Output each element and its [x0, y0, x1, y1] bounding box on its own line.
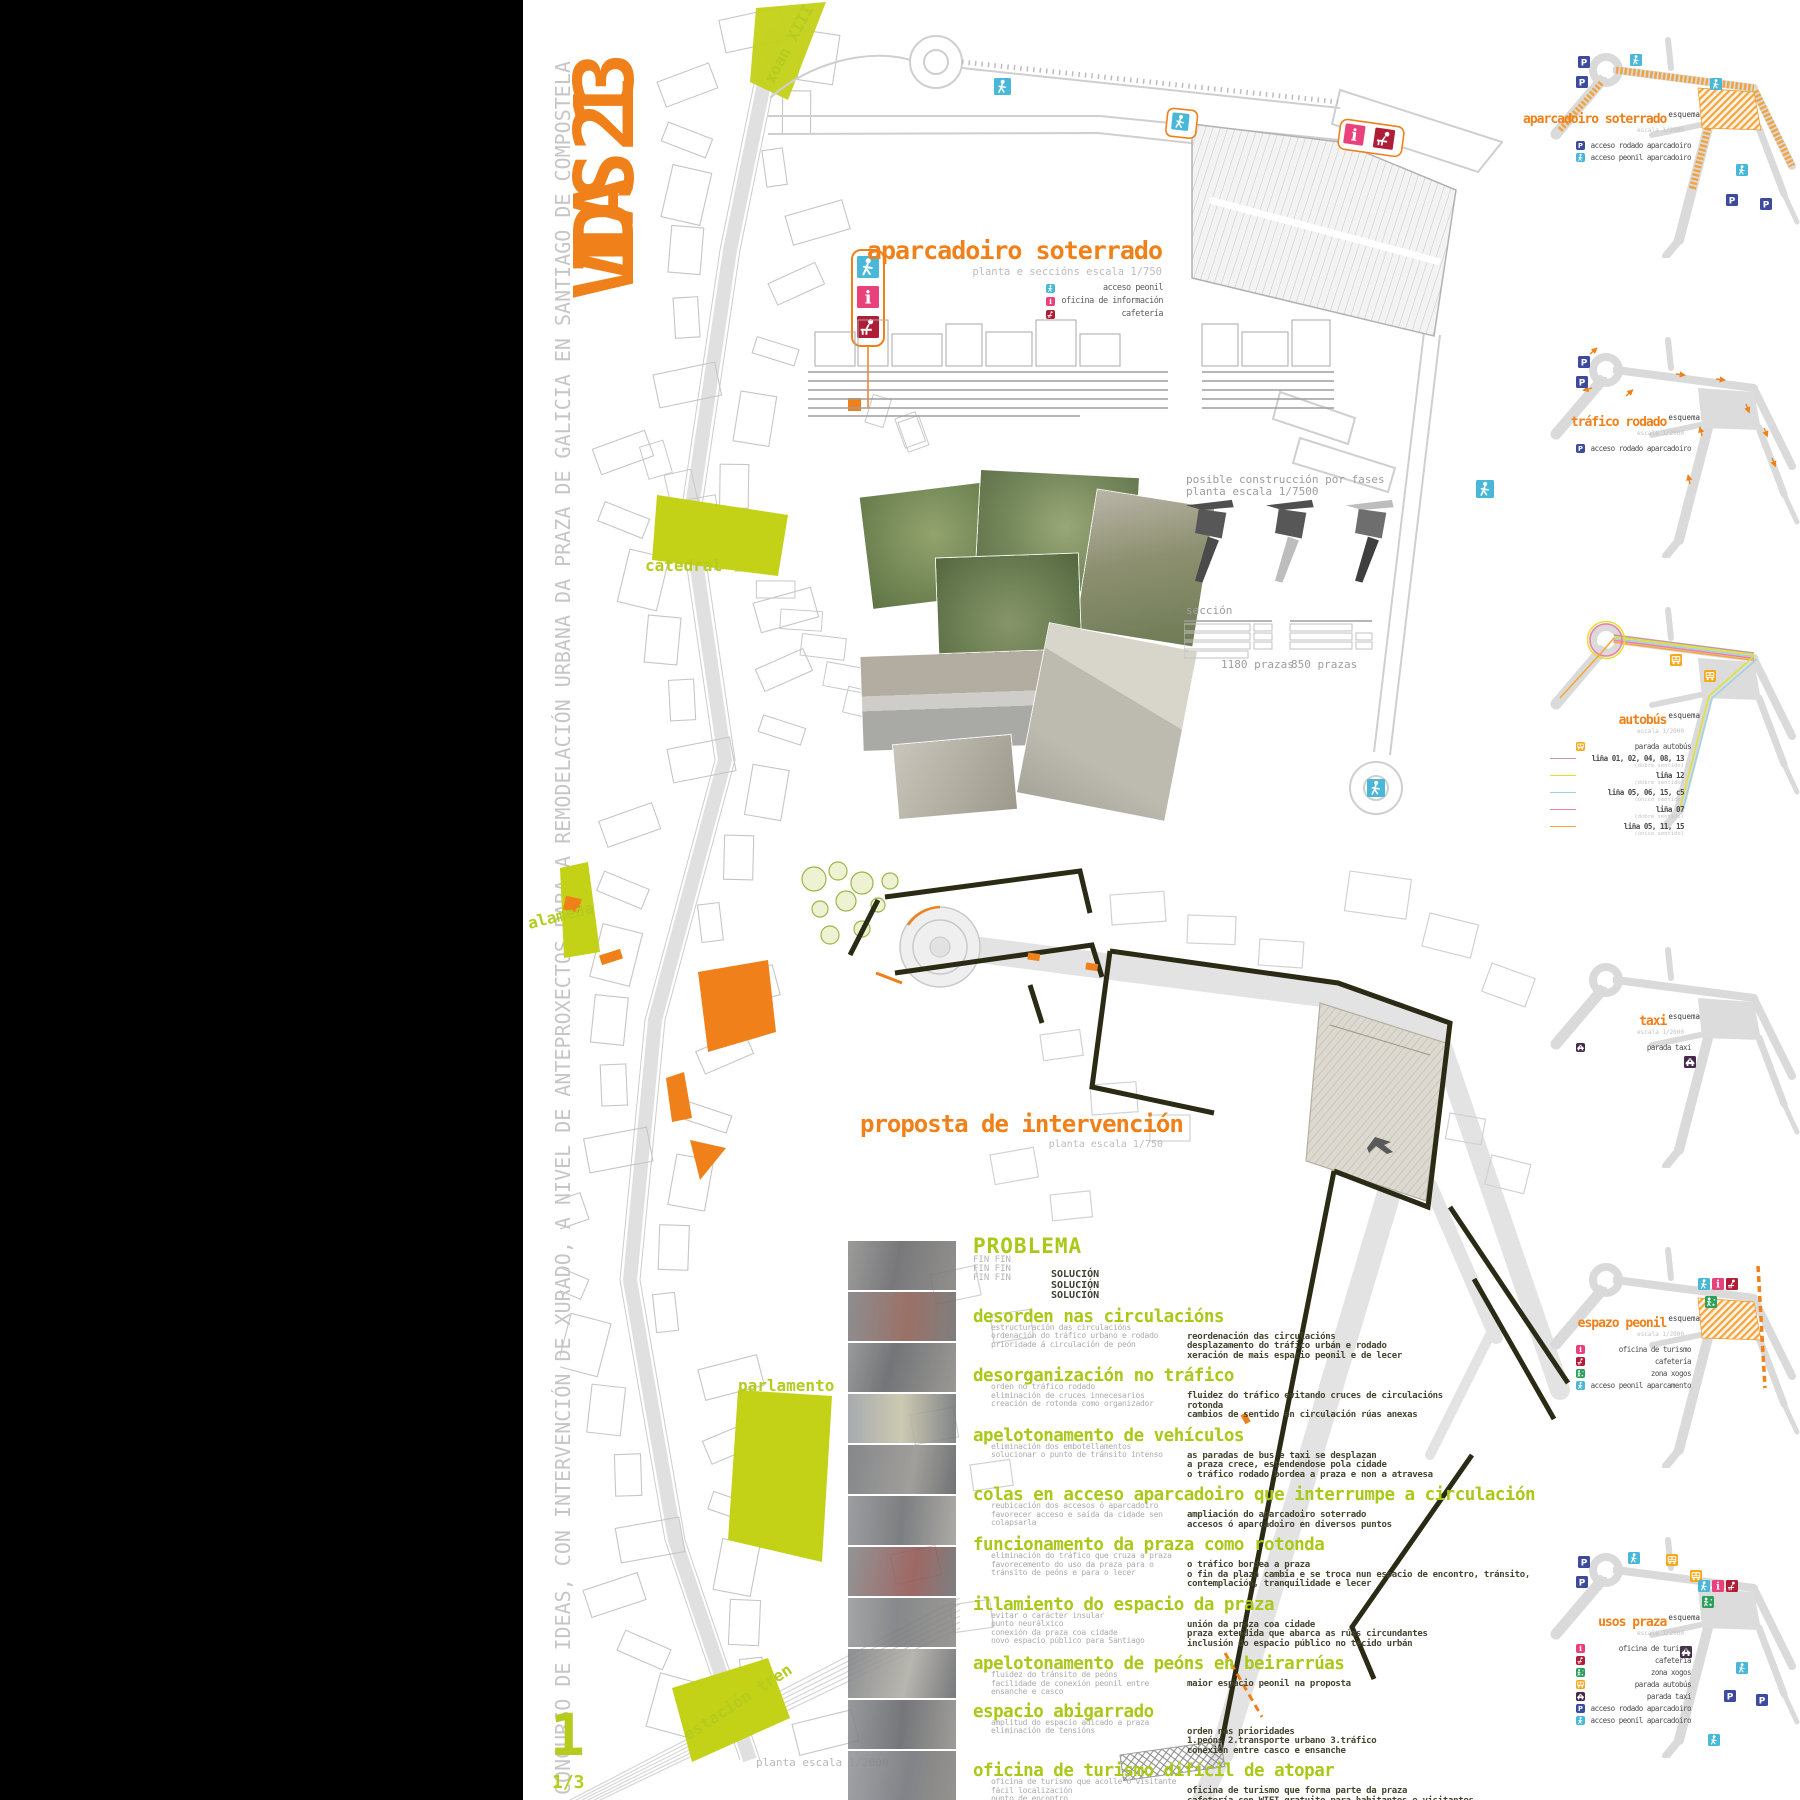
parking-plan-legend: acceso peonilioficina de informacióncafe…	[1046, 283, 1163, 322]
schematic-title: aparcadoiro soterrado	[1523, 112, 1666, 127]
bus-stop-icon	[1670, 654, 1682, 666]
parking-icon: P	[1724, 1690, 1736, 1702]
line-swatch	[1550, 792, 1576, 793]
schematic-title: taxi	[1639, 1014, 1666, 1029]
pedestrian-access-icon	[1576, 1716, 1585, 1725]
pedestrian-access-icon	[1576, 153, 1585, 162]
svg-text:P: P	[1763, 200, 1770, 210]
parking-icon: P	[1576, 76, 1588, 88]
schematic-taxi: taxi esquema escala 1/2000 parada taxi	[1550, 938, 1800, 1168]
cafeteria-icon	[1046, 310, 1055, 319]
info-office-icon: i	[1046, 297, 1055, 306]
pedestrian-access-icon	[1476, 480, 1494, 498]
problem-item: funcionamento da praza como rotondaelimi…	[973, 1537, 1548, 1590]
legend-label: oficina de turismo	[1589, 1644, 1691, 1653]
schematic-usos-praza: PPiPP usos praza esquema escala 1/2000 i…	[1550, 1528, 1800, 1758]
pedestrian-access-icon	[1046, 284, 1055, 293]
legend-label: oficina de información	[1059, 296, 1163, 306]
legend-label: zona xogos	[1589, 1668, 1691, 1677]
schematic-tag: esquema	[1668, 1012, 1700, 1021]
pedestrian-access-icon	[1736, 1662, 1748, 1674]
problem-photo	[848, 1241, 956, 1290]
phase-diagram	[1346, 500, 1394, 583]
solution-lines: ampliación do aparcadoiro soterrado acce…	[1187, 1502, 1392, 1530]
schematic-tag: esquema	[1668, 1314, 1700, 1323]
problem-photo	[848, 1649, 956, 1698]
line-swatch	[1550, 758, 1576, 759]
schematic-legend: ioficina de turismocafeteríazona xogospa…	[1576, 1644, 1718, 1725]
schematic-legend: Pacceso rodado aparcadoiroacceso peonil …	[1576, 141, 1718, 162]
legend-item: acceso peonil	[1046, 283, 1163, 293]
line-note: (único sentido)	[1550, 831, 1684, 837]
legend-item: parada taxi	[1576, 1043, 1718, 1052]
parking-icon: P	[1578, 56, 1590, 68]
solution-lines: orden nas prioridades 1.peóns 2.transpor…	[1187, 1719, 1376, 1757]
schematic-autobus: autobús esquema escala 1/2000 parada aut…	[1550, 598, 1800, 828]
info-office-icon: i	[1576, 1644, 1585, 1653]
pedestrian-access-icon	[1698, 1278, 1710, 1290]
taxi-stop-icon	[1684, 1056, 1696, 1068]
line-label: liña 12	[1580, 771, 1684, 780]
svg-text:P: P	[1579, 1578, 1586, 1588]
legend-item: cafetería	[1576, 1656, 1718, 1665]
phases-title: posible construcción por fases planta es…	[1186, 474, 1385, 498]
proposal-subtitle: planta escala 1/750	[860, 1139, 1163, 1150]
pedestrian-access-icon	[1630, 54, 1642, 66]
parking-plan-title: aparcadoiro soterrado	[860, 236, 1162, 265]
solution-lines: as paradas de bus e taxi se desplazan a …	[1187, 1443, 1433, 1481]
problem-photo	[848, 1598, 956, 1647]
pedestrian-access-icon	[1628, 1552, 1640, 1564]
pedestrian-access-icon	[1367, 779, 1385, 797]
capacity-850: 850 prazas	[1291, 658, 1357, 671]
bus-lines-legend: liña 01, 02, 04, 08, 13(dobre sentido)li…	[1550, 754, 1718, 837]
legend-item: parada autobús	[1576, 742, 1718, 751]
cafeteria-icon	[1373, 127, 1396, 150]
playground-icon	[1576, 1369, 1585, 1378]
problem-item: apelotonamento de vehículoseliminación d…	[973, 1428, 1548, 1481]
schematic-scale-note: escala 1/2000	[1550, 728, 1700, 735]
legend-item: acceso peonil aparcamento	[1576, 1381, 1718, 1390]
legend-label: parada taxi	[1589, 1692, 1691, 1701]
line-label: liña 05, 11, 15	[1580, 822, 1684, 831]
line-label: liña 01, 02, 04, 08, 13	[1580, 754, 1684, 763]
svg-text:P: P	[1581, 358, 1588, 368]
legend-label: parada autobús	[1589, 1680, 1691, 1689]
schematic-title: usos praza	[1598, 1615, 1666, 1630]
problem-lines: fluidez do tránsito de peóns facilidade …	[991, 1671, 1187, 1697]
legend-item: Pacceso rodado aparcadoiro	[1576, 444, 1718, 453]
svg-text:i: i	[1716, 1280, 1720, 1291]
schematic-tag: esquema	[1668, 110, 1700, 119]
problem-photo	[848, 1343, 956, 1392]
problem-item: desorganización no tráficoorden no tráfi…	[973, 1368, 1548, 1421]
legend-label: acceso rodado aparcadoiro	[1589, 141, 1691, 150]
svg-text:P: P	[1581, 58, 1588, 68]
solution-lines: maior espacio peonil na proposta	[1187, 1671, 1351, 1697]
phase-diagram	[1266, 500, 1314, 583]
info-office-icon: i	[857, 286, 879, 309]
schematic-trafico-rodado: PP tráfico rodado esquema escala 1/2000 …	[1550, 328, 1800, 558]
parking-icon: P	[1576, 444, 1585, 453]
info-office-icon: i	[1576, 1345, 1585, 1354]
schematic-title: espazo peonil	[1578, 1316, 1667, 1331]
legend-label: acceso rodado aparcadoiro	[1589, 444, 1691, 453]
pedestrian-access-icon	[1171, 112, 1190, 131]
pedestrian-access-icon	[1710, 78, 1722, 90]
info-office-icon: i	[1343, 123, 1366, 146]
parking-icon: P	[1576, 1704, 1585, 1713]
problem-lines: reubicación dos accesos ó aparcadoiro fa…	[991, 1502, 1187, 1530]
bus-stop-icon	[1576, 742, 1585, 751]
problem-item: illamiento do espacio da prazaevitar o c…	[973, 1597, 1548, 1650]
schematic-tag: esquema	[1668, 413, 1700, 422]
svg-text:P: P	[1579, 78, 1586, 88]
problem-item: desorden nas circulaciónsestructuración …	[973, 1309, 1548, 1362]
legend-label: cafetería	[1059, 309, 1163, 319]
parking-icon: P	[1726, 194, 1738, 206]
pedestrian-access-icon	[1576, 1381, 1585, 1390]
svg-text:i: i	[1049, 297, 1052, 306]
problem-photo	[848, 1751, 956, 1800]
svg-text:P: P	[1759, 1696, 1766, 1706]
legend-item: cafetería	[1046, 309, 1163, 319]
schematic-legend: parada taxi	[1576, 1043, 1718, 1052]
legend-item: ioficina de turismo	[1576, 1345, 1718, 1354]
phases-scale-note: planta escala 1/7500	[1186, 486, 1385, 498]
schematic-espazo-peonil: i espazo peonil esquema escala 1/2000 io…	[1550, 1238, 1800, 1468]
solution-stack: SOLUCIÓN SOLUCIÓN SOLUCIÓN	[1051, 1270, 1548, 1302]
playground-icon	[1576, 1668, 1585, 1677]
solution-lines: oficina de turismo que forma parte da pr…	[1187, 1778, 1474, 1800]
problem-lines: eliminación dos embotellamentos solucion…	[991, 1443, 1187, 1481]
line-label: liña 07	[1580, 805, 1684, 814]
parking-icon: P	[1576, 1576, 1588, 1588]
section-label: sección	[1186, 604, 1232, 617]
line-label: liña 05, 06, 15, c5	[1580, 788, 1684, 797]
line-note: (dobre sentido)	[1550, 780, 1684, 786]
solution-lines: reordenación das circulacións desplazame…	[1187, 1324, 1402, 1362]
capacity-1180: 1180 prazas	[1221, 658, 1294, 671]
legend-item: zona xogos	[1576, 1369, 1718, 1378]
line-swatch	[1550, 775, 1576, 776]
cafeteria-icon	[1726, 1580, 1738, 1592]
problem-lines: oficina de turismo que acolle ó visitant…	[991, 1778, 1187, 1800]
pedestrian-access-icon	[1698, 1580, 1710, 1592]
proposal-heading: proposta de intervención planta escala 1…	[860, 1110, 1163, 1150]
competition-panel: VIDAS 213 CONCURSO DE IDEAS, CON INTERVE…	[0, 0, 1800, 1800]
parking-icon: P	[1576, 376, 1588, 388]
parking-icon: P	[1576, 141, 1585, 150]
problem-item: oficina de turismo difícil de atoparofic…	[973, 1763, 1548, 1800]
problems-title: PROBLEMA	[973, 1234, 1548, 1258]
parking-icon: P	[1578, 1556, 1590, 1568]
legend-label: acceso peonil	[1059, 283, 1163, 293]
legend-item: ioficina de turismo	[1576, 1644, 1718, 1653]
legend-item: Pacceso rodado aparcadoiro	[1576, 141, 1718, 150]
svg-text:i: i	[1579, 1644, 1582, 1653]
problem-photo	[848, 1292, 956, 1341]
cafeteria-icon	[1726, 1278, 1738, 1290]
pedestrian-access-icon	[1736, 164, 1748, 176]
bus-line-item: liña 07	[1550, 805, 1718, 814]
bus-line-item: liña 05, 06, 15, c5	[1550, 788, 1718, 797]
problem-item: colas en acceso aparcadoiro que interrum…	[973, 1487, 1548, 1530]
legend-label: zona xogos	[1589, 1369, 1691, 1378]
info-office-icon: i	[1712, 1580, 1724, 1593]
bus-stop-icon	[1704, 670, 1716, 682]
bus-line-item: liña 01, 02, 04, 08, 13	[1550, 754, 1718, 763]
line-swatch	[1550, 826, 1576, 827]
problem-lines: eliminación do tráfico que cruza a praza…	[991, 1552, 1187, 1590]
parking-plan-subtitle: planta e seccións escala 1/750	[860, 266, 1162, 278]
schematic-scale-note: escala 1/2000	[1550, 1331, 1700, 1338]
solution-lines: fluidez do tráfico evitando cruces de ci…	[1187, 1383, 1443, 1421]
map-label-catedral: catedral	[645, 556, 722, 575]
pedestrian-access-icon	[994, 78, 1011, 95]
proposal-title: proposta de intervención	[860, 1110, 1163, 1138]
schematic-legend: parada autobús	[1576, 742, 1718, 751]
line-swatch	[1550, 809, 1576, 810]
legend-label: acceso peonil aparcadoiro	[1589, 1716, 1691, 1725]
parking-plan-heading: aparcadoiro soterrado planta e seccións …	[860, 236, 1162, 278]
schematic-aparcadoiro-soterrado: PPPP aparcadoiro soterrado esquema escal…	[1550, 28, 1800, 258]
svg-text:i: i	[1716, 1582, 1720, 1593]
cafeteria-icon	[1576, 1656, 1585, 1665]
section-bar-diagrams	[1184, 620, 1384, 662]
problem-items: desorden nas circulaciónsestructuración …	[973, 1309, 1548, 1800]
bus-stop-icon	[1666, 1554, 1678, 1566]
legend-label: acceso peonil aparcamento	[1589, 1381, 1691, 1390]
playground-icon	[1702, 1596, 1714, 1608]
parking-icon: P	[1760, 198, 1772, 210]
legend-item: ioficina de información	[1046, 296, 1163, 306]
problem-item: apelotonamento de peóns en beirarrúasflu…	[973, 1656, 1548, 1697]
pedestrian-access-icon	[1708, 1734, 1720, 1746]
plaza-detail-photo	[893, 735, 1017, 819]
legend-label: cafetería	[1589, 1357, 1691, 1366]
phase-diagram	[1186, 500, 1234, 583]
problem-lines: amplitud do espacio adicado a praza elim…	[991, 1719, 1187, 1757]
legend-label: cafetería	[1589, 1656, 1691, 1665]
line-note: (dobre sentido)	[1550, 763, 1684, 769]
legend-item: Pacceso rodado aparcadoiro	[1576, 1704, 1718, 1713]
construction-phases-diagrams	[1184, 498, 1424, 594]
schematic-scale-note: escala 1/2000	[1550, 430, 1700, 437]
line-note: (dobre sentido)	[1550, 814, 1684, 820]
black-margin-bar	[0, 0, 523, 1800]
schematic-title: autobús	[1619, 713, 1667, 728]
parking-icon: P	[1756, 1694, 1768, 1706]
svg-text:i: i	[1579, 1345, 1582, 1354]
line-note: (único sentido)	[1550, 797, 1684, 803]
bus-line-item: liña 12	[1550, 771, 1718, 780]
svg-text:i: i	[865, 288, 872, 309]
problem-photo	[848, 1700, 956, 1749]
solution-lines: o tráfico bordea a praza o fin da plaza …	[1187, 1552, 1548, 1590]
svg-text:P: P	[1727, 1692, 1734, 1702]
solution-lines: unión da praza coa cidade praza extendid…	[1187, 1612, 1428, 1650]
svg-text:P: P	[1579, 378, 1586, 388]
schematic-scale-note: escala 1/2000	[1550, 1029, 1700, 1036]
legend-item: parada taxi	[1576, 1692, 1718, 1701]
schematic-legend: ioficina de turismocafeteríazona xogosac…	[1576, 1345, 1718, 1390]
taxi-stop-icon	[1576, 1692, 1585, 1701]
legend-item: acceso peonil aparcadoiro	[1576, 1716, 1718, 1725]
legend-label: acceso rodado aparcadoiro	[1589, 1704, 1691, 1713]
taxi-stop-icon	[1576, 1043, 1585, 1052]
playground-icon	[1705, 1296, 1717, 1308]
problem-photo	[848, 1394, 956, 1443]
schematic-legend: Pacceso rodado aparcadoiro	[1576, 444, 1718, 453]
legend-label: oficina de turismo	[1589, 1345, 1691, 1354]
problem-lines: evitar o carácter insular punto neurálxi…	[991, 1612, 1187, 1650]
problem-lines: orden no tráfico rodado eliminación de c…	[991, 1383, 1187, 1421]
svg-text:P: P	[1578, 142, 1583, 150]
legend-item: acceso peonil aparcadoiro	[1576, 153, 1718, 162]
cafeteria-icon	[857, 316, 879, 338]
problem-photo	[848, 1547, 956, 1596]
schematic-tag: esquema	[1668, 1613, 1700, 1622]
legend-item: parada autobús	[1576, 1680, 1718, 1689]
schematic-tag: esquema	[1668, 711, 1700, 720]
schematic-scale-note: escala 1/2000	[1550, 127, 1700, 134]
svg-text:P: P	[1578, 1705, 1583, 1713]
svg-text:P: P	[1578, 445, 1583, 453]
bus-stop-icon	[1576, 1680, 1585, 1689]
problem-photo	[848, 1496, 956, 1545]
cafeteria-icon	[1576, 1357, 1585, 1366]
problem-item: espacio abigarradoamplitud do espacio ad…	[973, 1704, 1548, 1757]
legend-item: zona xogos	[1576, 1668, 1718, 1677]
info-office-icon: i	[1712, 1278, 1724, 1291]
schematic-title: tráfico rodado	[1571, 415, 1667, 430]
svg-text:P: P	[1729, 196, 1736, 206]
legend-label: acceso peonil aparcadoiro	[1589, 153, 1691, 162]
problems-list: PROBLEMA FIN FIN FIN FIN FIN FIN SOLUCIÓ…	[973, 1234, 1548, 1800]
problem-lines: estructuración das circulacións ordenaci…	[991, 1324, 1187, 1362]
bus-line-item: liña 05, 11, 15	[1550, 822, 1718, 831]
problem-photo	[848, 1445, 956, 1494]
schematic-scale-note: escala 1/2000	[1550, 1630, 1700, 1637]
svg-text:P: P	[1581, 1558, 1588, 1568]
legend-label: parada autobús	[1589, 742, 1691, 751]
parking-icon: P	[1578, 356, 1590, 368]
legend-item: cafetería	[1576, 1357, 1718, 1366]
legend-label: parada taxi	[1589, 1043, 1691, 1052]
